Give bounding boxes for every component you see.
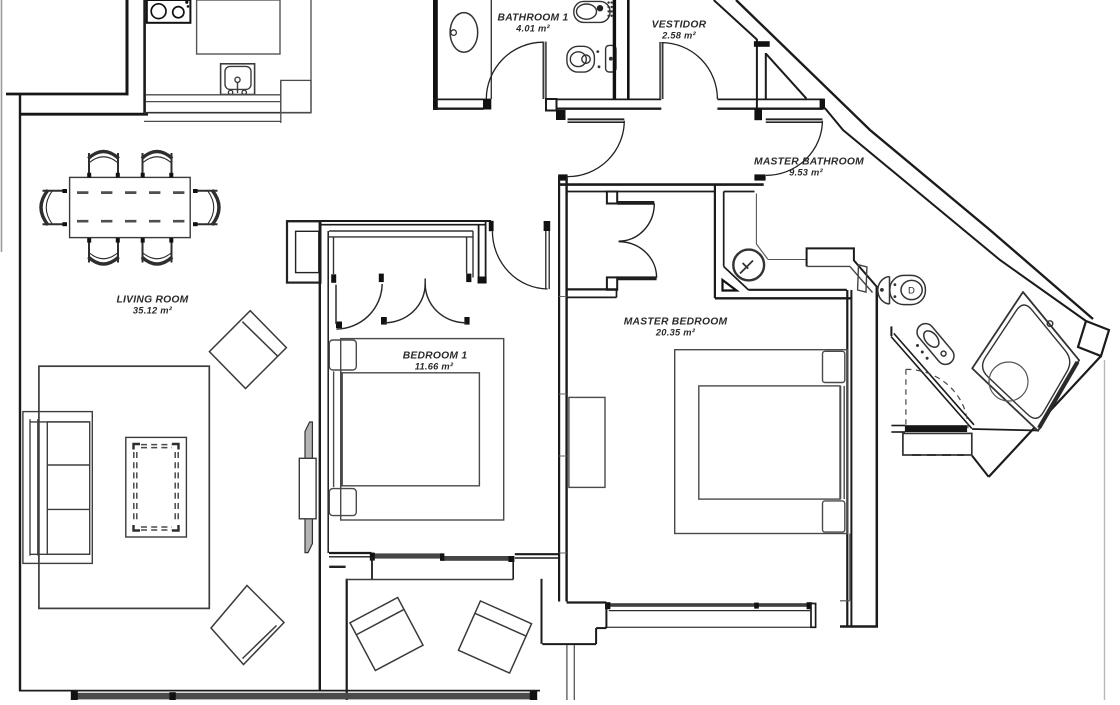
svg-text:9.53 m²: 9.53 m² <box>789 168 823 178</box>
svg-text:VESTIDOR: VESTIDOR <box>652 20 707 31</box>
svg-text:11.66 m²: 11.66 m² <box>415 362 454 372</box>
svg-text:MASTER BATHROOM: MASTER BATHROOM <box>754 157 864 168</box>
svg-text:35.12 m²: 35.12 m² <box>133 306 173 316</box>
svg-text:20.35 m²: 20.35 m² <box>655 328 696 338</box>
svg-text:MASTER BEDROOM: MASTER BEDROOM <box>624 317 728 328</box>
svg-text:BEDROOM 1: BEDROOM 1 <box>403 351 468 362</box>
svg-text:BATHROOM 1: BATHROOM 1 <box>498 13 569 24</box>
svg-text:2.58 m²: 2.58 m² <box>661 31 696 41</box>
svg-text:4.01 m²: 4.01 m² <box>515 24 550 34</box>
svg-text:D: D <box>908 286 915 297</box>
svg-text:LIVING ROOM: LIVING ROOM <box>117 295 189 306</box>
